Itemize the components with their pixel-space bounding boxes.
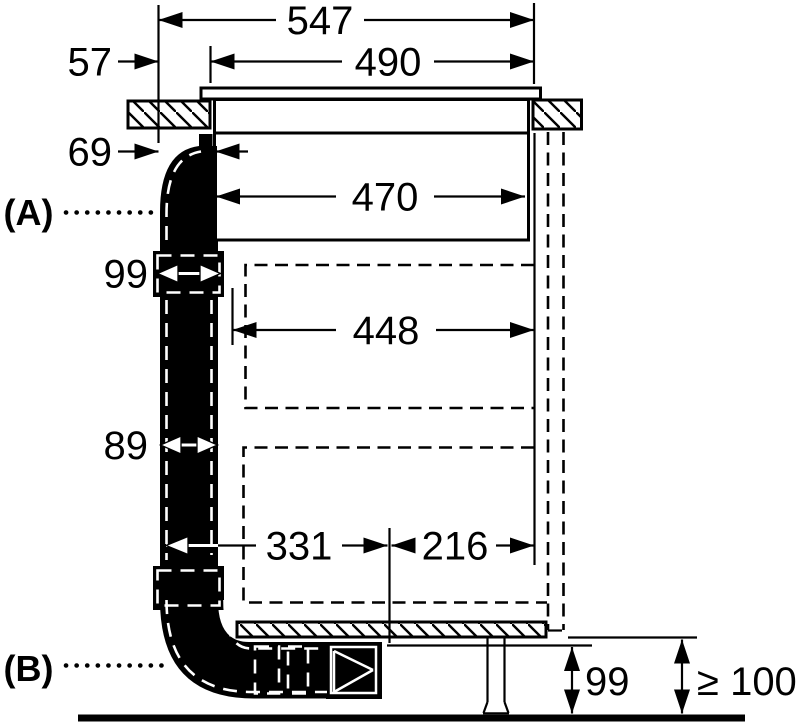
plinth-reference-lines [387, 638, 697, 646]
dim-448-label: 448 [353, 309, 420, 353]
hob-glass [201, 88, 541, 99]
dim-99-bottom-label: 99 [585, 660, 630, 704]
dim-490-label: 490 [355, 41, 422, 85]
worktop-left-section [128, 101, 210, 128]
dimension-plinth-duct-height: 99 [564, 647, 630, 714]
section-label-b: (B) [4, 648, 163, 689]
dim-547-label: 547 [287, 0, 354, 43]
dim-216-label: 216 [422, 525, 489, 569]
dim-331-label: 331 [266, 525, 333, 569]
dim-min100-label: ≥ 100 [697, 660, 797, 704]
dimension-plinth-min-height: ≥ 100 [674, 640, 797, 714]
dimension-front-offset: 57 [68, 41, 159, 85]
adjustable-foot [483, 638, 509, 714]
label-b-text: (B) [4, 648, 54, 689]
dimension-rear-clearance: 216 [392, 525, 535, 569]
dim-69-label: 69 [68, 131, 113, 175]
dim-470-label: 470 [352, 176, 419, 220]
cabinet-side-panel-dashed [548, 132, 564, 631]
cabinet-bottom-panel [237, 622, 546, 637]
dim-99-top-label: 99 [104, 253, 149, 297]
installation-diagram: 547 490 57 69 470 99 [0, 0, 800, 725]
section-label-a: (A) [4, 192, 157, 233]
dimension-total-depth: 547 [159, 0, 535, 43]
dim-57-label: 57 [68, 41, 113, 85]
installation-diagram-page: 547 490 57 69 470 99 [0, 0, 800, 725]
label-a-text: (A) [4, 192, 54, 233]
dimension-cutout-depth: 490 [211, 41, 535, 85]
dimension-cabinet-inner-depth: 448 [233, 309, 535, 353]
worktop-right-section [533, 100, 582, 129]
dim-89-label: 89 [104, 424, 149, 468]
